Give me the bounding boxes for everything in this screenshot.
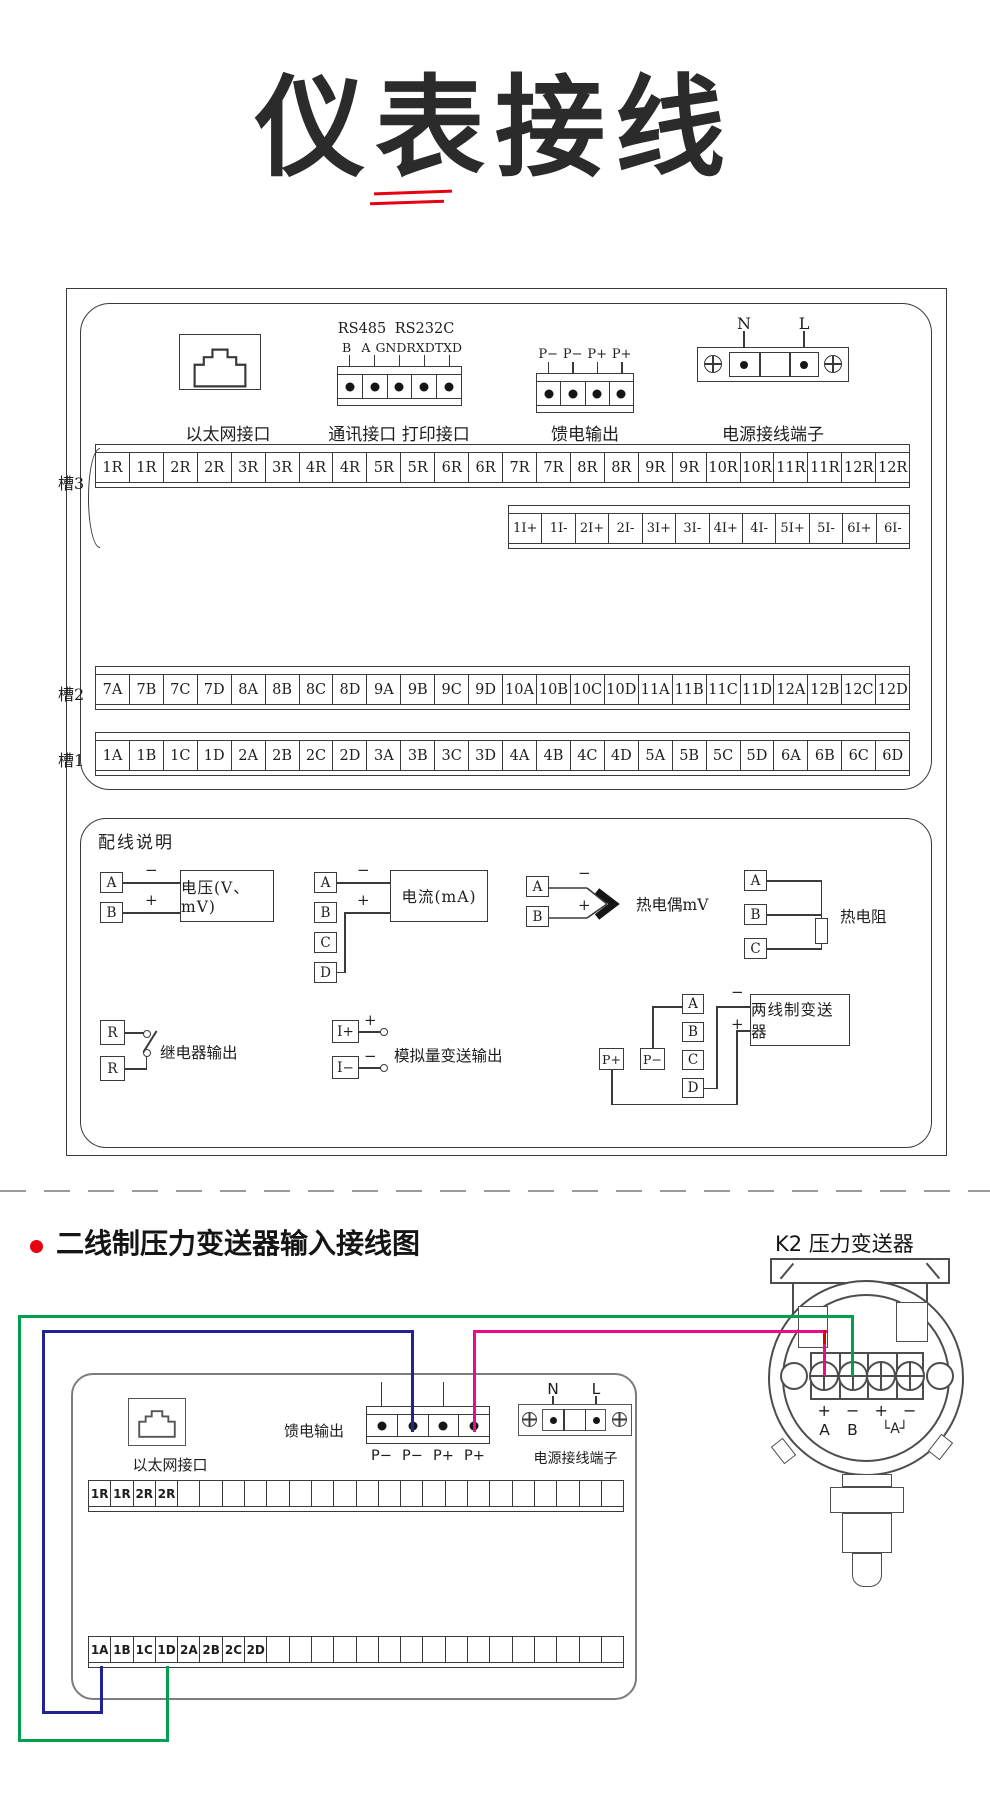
terminal-cell — [437, 375, 461, 398]
terminal-cell: 6R — [469, 453, 503, 482]
terminal-a: A — [744, 870, 767, 891]
terminal-cell: 7R — [537, 453, 571, 482]
terminal-cell: 12A — [774, 675, 808, 704]
terminal-cell: 10R — [707, 453, 741, 482]
feed-output-terminal-block — [366, 1406, 490, 1444]
terminal-cell — [446, 1637, 468, 1662]
terminal-cell: 2R — [156, 1481, 178, 1506]
terminal-block-bottom-bar — [367, 1436, 489, 1443]
terminal-cell — [468, 1481, 490, 1506]
terminal-cell — [412, 375, 437, 398]
terminal-cell: 6R — [435, 453, 469, 482]
terminal-cell — [535, 1637, 557, 1662]
bottom-relay-strip: 1R1R2R2R — [88, 1480, 624, 1507]
terminal-cell: 2R — [134, 1481, 156, 1506]
terminal-cell — [423, 1481, 445, 1506]
terminal-dot — [550, 1417, 557, 1424]
pink-wire-segment — [473, 1330, 476, 1432]
terminal-cell: 7A — [96, 675, 130, 704]
line — [767, 948, 822, 950]
terminal-cell: 2C — [300, 741, 334, 770]
terminal-cell: 1R — [130, 453, 164, 482]
terminal-cell: 1R — [111, 1481, 133, 1506]
comm-pin-label: A — [356, 339, 375, 355]
terminal-block-bottom-bar — [338, 398, 461, 405]
line — [443, 1382, 445, 1408]
terminal-cell: 7D — [198, 675, 232, 704]
terminal-cell: 5R — [401, 453, 435, 482]
terminal-cell: 2A — [178, 1637, 200, 1662]
terminal-c: C — [744, 938, 767, 959]
terminal-cell: 5R — [367, 453, 401, 482]
terminal-cell: 9B — [401, 675, 435, 704]
terminal-cell: 8A — [232, 675, 266, 704]
slot2-terminal-strip: 7A7B7C7D8A8B8C8D9A9B9C9D10A10B10C10D11A1… — [95, 674, 910, 705]
green-wire-segment — [18, 1739, 169, 1742]
terminal-cell: 1D — [156, 1637, 178, 1662]
terminal-cell — [388, 375, 413, 398]
feed-output-terminal-block — [536, 373, 634, 413]
line — [767, 880, 822, 882]
terminal-cell — [245, 1481, 267, 1506]
minus-sign: − — [731, 983, 744, 1001]
rj45-connector-icon — [138, 1410, 176, 1438]
terminal-cell — [379, 1637, 401, 1662]
terminal-cell: 1C — [164, 741, 198, 770]
terminal-cells — [338, 375, 461, 398]
feed-pin-label: P+ — [428, 1448, 459, 1464]
green-wire-segment — [166, 1666, 169, 1742]
terminal-cell — [429, 1415, 460, 1436]
ethernet-port-label: 以太网接口 — [148, 420, 308, 445]
terminal-cell: 9R — [639, 453, 673, 482]
blue-wire-segment — [42, 1330, 414, 1333]
terminal-cell: 12R — [842, 453, 876, 482]
terminal-cell: 11D — [741, 675, 775, 704]
ethernet-port-label: 以太网接口 — [110, 1454, 230, 1475]
wiring-notes-box — [80, 818, 932, 1148]
line — [337, 972, 345, 974]
terminal-cell — [468, 1637, 490, 1662]
terminal-cell — [338, 375, 363, 398]
terminal-cell: 5A — [639, 741, 673, 770]
terminal-cell: 6D — [876, 741, 909, 770]
terminal-cell: 1D — [198, 741, 232, 770]
output-dot-icon — [380, 1028, 388, 1036]
terminal-cell — [446, 1481, 468, 1506]
blue-wire-segment — [100, 1666, 103, 1714]
line — [123, 882, 180, 884]
rtd-label: 热电阻 — [840, 905, 887, 927]
line — [704, 1088, 717, 1090]
comm-pin-label: B — [337, 339, 356, 355]
terminal-cell: 4R — [333, 453, 367, 482]
comm-print-port-label: 通讯接口 打印接口 — [309, 420, 489, 445]
terminal-cell: 4R — [300, 453, 334, 482]
bottom-input-strip: 1A1B1C1D2A2B2C2D — [88, 1636, 624, 1663]
terminal-cell: 1R — [96, 453, 130, 482]
slot2-label: 槽2 — [58, 681, 84, 705]
terminal-cell: 9R — [673, 453, 707, 482]
terminal-cell: 3C — [435, 741, 469, 770]
terminal-cell: 11A — [639, 675, 673, 704]
terminal-cell: 4A — [503, 741, 537, 770]
terminal-a: A — [526, 876, 549, 897]
strip-bottom-bar — [95, 482, 910, 488]
comm-pin-label: RXD — [406, 339, 434, 355]
terminal-i-plus: I+ — [332, 1020, 359, 1043]
transmitter-b-label: B — [845, 1421, 860, 1439]
terminal-cell — [312, 1481, 334, 1506]
feed-pin-label: P− — [536, 346, 561, 362]
transmitter-hex-fitting — [830, 1487, 904, 1513]
terminal-cell — [561, 382, 585, 405]
terminal-b: B — [682, 1022, 704, 1042]
page-title: 仪表接线 — [0, 38, 990, 198]
feed-pin-label: P+ — [585, 346, 610, 362]
terminal-cell — [602, 1481, 623, 1506]
terminal-cell: 2I+ — [576, 514, 609, 543]
terminal-cell: 1R — [89, 1481, 111, 1506]
terminal-r2: R — [100, 1056, 125, 1081]
relay-output-label: 继电器输出 — [160, 1041, 238, 1063]
terminal-cell — [290, 1481, 312, 1506]
terminal-dot — [593, 1417, 600, 1424]
line — [344, 912, 390, 914]
strip-bottom-bar — [95, 770, 910, 776]
terminal-cell — [580, 1481, 602, 1506]
terminal-cell: 5I- — [810, 514, 843, 543]
terminal-cell — [610, 382, 633, 405]
terminal-cell: 4D — [605, 741, 639, 770]
terminal-cell — [312, 1637, 334, 1662]
terminal-a: A — [682, 994, 704, 1014]
terminal-r1: R — [100, 1020, 125, 1045]
terminal-cell: 2D — [333, 741, 367, 770]
terminal-cell: 8R — [571, 453, 605, 482]
terminal-cell: 3I+ — [643, 514, 676, 543]
terminal-cell — [363, 375, 388, 398]
terminal-block-top-bar — [537, 374, 633, 382]
terminal-cell: 9C — [435, 675, 469, 704]
terminal-cell: 2I- — [609, 514, 642, 543]
terminal-a: A — [100, 872, 123, 893]
terminal-p-plus: P+ — [599, 1048, 624, 1070]
terminal-screw-plus-icon — [866, 1361, 896, 1391]
minus-sign: − — [364, 1047, 377, 1065]
line — [759, 352, 761, 377]
line — [563, 1409, 565, 1431]
terminal-cell — [490, 1637, 512, 1662]
terminal-cell: 1I+ — [509, 514, 542, 543]
voltage-device-box: 电压(V、mV) — [180, 870, 274, 922]
terminal-cell — [223, 1481, 245, 1506]
terminal-cell — [537, 382, 561, 405]
terminal-cell: 1A — [89, 1637, 111, 1662]
strip-bottom-bar — [88, 1506, 624, 1512]
comm-pin-label: TXD — [435, 339, 462, 355]
terminal-dot — [800, 361, 808, 369]
feed-pin-label: P− — [366, 1448, 397, 1464]
line — [146, 1056, 148, 1069]
terminal-cell — [557, 1481, 579, 1506]
terminal-cell: 1A — [96, 741, 130, 770]
current-device-box: 电流(mA) — [390, 870, 488, 922]
line — [736, 1030, 738, 1105]
terminal-cell — [602, 1637, 623, 1662]
cap-notch — [896, 1302, 928, 1342]
slot1-label: 槽1 — [58, 747, 84, 771]
terminal-cell: 11R — [808, 453, 842, 482]
power-terminal-label: 电源接线端子 — [508, 1448, 643, 1468]
terminal-cell — [379, 1481, 401, 1506]
feed-output-label: 馈电输出 — [515, 420, 655, 445]
feed-pin-label: P+ — [610, 346, 635, 362]
terminal-screw-icon — [926, 1362, 954, 1390]
contact-dot-icon — [143, 1030, 151, 1038]
terminal-cell — [267, 1637, 289, 1662]
terminal-cell: 4B — [537, 741, 571, 770]
output-dot-icon — [380, 1064, 388, 1072]
feed-output-label: 馈电输出 — [284, 1420, 344, 1441]
strip-bottom-bar — [508, 543, 910, 549]
resistor-icon — [815, 918, 828, 944]
terminal-cell — [535, 1481, 557, 1506]
terminal-c: C — [682, 1050, 704, 1070]
section-title: 二线制压力变送器输入接线图 — [56, 1222, 420, 1262]
green-wire-segment — [18, 1315, 854, 1318]
terminal-cell: 11R — [774, 453, 808, 482]
terminal-cell — [334, 1481, 356, 1506]
line — [585, 1409, 587, 1431]
line — [359, 1067, 381, 1069]
terminal-cell: 2R — [164, 453, 198, 482]
terminal-cell: 2R — [198, 453, 232, 482]
line — [736, 1030, 750, 1032]
terminal-cell: 3D — [469, 741, 503, 770]
pink-wire-segment — [473, 1330, 827, 1333]
sign-label: − — [896, 1402, 925, 1419]
feed-pin-label: P− — [397, 1448, 428, 1464]
slot3-terminal-strip: 1R1R2R2R3R3R4R4R5R5R6R6R7R7R8R8R9R9R10R1… — [95, 452, 910, 483]
terminal-cell: 7C — [164, 675, 198, 704]
terminal-cell: 7R — [503, 453, 537, 482]
terminal-cell — [586, 382, 610, 405]
terminal-cell: 10B — [537, 675, 571, 704]
terminal-screw-icon — [780, 1362, 808, 1390]
power-terminal-label: 电源接线端子 — [693, 420, 853, 445]
terminal-block-top-bar — [338, 367, 461, 375]
terminal-cell: 8C — [300, 675, 334, 704]
terminal-cell: 8R — [605, 453, 639, 482]
transmitter-bracket-a-label: └A┘ — [866, 1421, 924, 1437]
terminal-cell — [200, 1481, 222, 1506]
blue-wire-segment — [411, 1330, 414, 1432]
plus-sign: + — [364, 1011, 377, 1029]
transmitter-sign-labels: +−+− — [810, 1402, 924, 1419]
line — [611, 1104, 737, 1106]
terminal-cell: 5D — [741, 741, 775, 770]
terminal-cell: 2D — [245, 1637, 267, 1662]
terminal-cell — [580, 1637, 602, 1662]
feed-pin-labels: P−P−P+P+ — [366, 1448, 490, 1464]
rs232c-label: RS232C — [391, 321, 458, 337]
terminal-cell: 3I- — [676, 514, 709, 543]
line — [716, 1006, 718, 1089]
sign-label: + — [867, 1402, 896, 1419]
terminal-c: C — [314, 932, 337, 953]
blue-wire-segment — [42, 1330, 45, 1714]
thermocouple-junction-icon — [549, 878, 633, 930]
comm-terminal-block — [337, 366, 462, 406]
line — [125, 1068, 147, 1070]
line — [652, 1006, 654, 1048]
slot3-current-terminal-strip: 1I+1I-2I+2I-3I+3I-4I+4I-5I+5I-6I+6I- — [508, 513, 910, 544]
terminal-cell: 9A — [367, 675, 401, 704]
screw-icon — [704, 355, 722, 373]
terminal-cell: 12D — [876, 675, 909, 704]
terminal-d: D — [682, 1078, 704, 1098]
terminal-cell: 6I- — [877, 514, 909, 543]
terminal-dot — [740, 361, 748, 369]
feed-pin-labels: P−P−P+P+ — [536, 346, 634, 362]
terminal-cell: 1I- — [542, 514, 575, 543]
transmitter-body — [842, 1513, 892, 1553]
terminal-d: D — [314, 962, 337, 983]
comm-pin-labels: BAGNDRXDTXD — [337, 339, 462, 355]
red-wire-segment — [823, 1330, 826, 1344]
terminal-block-bottom-bar — [537, 405, 633, 412]
screw-icon — [824, 355, 842, 373]
terminal-cell: 5I+ — [776, 514, 809, 543]
screw-icon — [522, 1412, 537, 1427]
line — [359, 1031, 381, 1033]
analog-output-label: 模拟量变送输出 — [394, 1044, 503, 1066]
comm-pin-label: GND — [375, 339, 406, 355]
terminal-block-top-bar — [367, 1407, 489, 1415]
title-red-underline — [370, 200, 444, 206]
section-divider — [0, 1190, 990, 1192]
terminal-cell — [178, 1481, 200, 1506]
terminal-cell: 8D — [333, 675, 367, 704]
plus-sign: + — [357, 891, 370, 909]
wiring-notes-title: 配线说明 — [98, 828, 174, 853]
terminal-cell: 6C — [842, 741, 876, 770]
terminal-cell: 4I- — [743, 514, 776, 543]
blue-wire-segment — [42, 1711, 103, 1714]
terminal-b: B — [100, 902, 123, 923]
feed-pin-label: P+ — [459, 1448, 490, 1464]
sign-label: + — [810, 1402, 839, 1419]
feed-pin-label: P− — [561, 346, 586, 362]
terminal-cell — [490, 1481, 512, 1506]
terminal-cell — [401, 1481, 423, 1506]
terminal-cell — [557, 1637, 579, 1662]
terminal-cell: 12C — [842, 675, 876, 704]
terminal-b: B — [526, 906, 549, 927]
terminal-cell: 5C — [707, 741, 741, 770]
transmitter-a-label: A — [817, 1421, 832, 1439]
minus-sign: − — [357, 861, 370, 879]
terminal-cell — [267, 1481, 289, 1506]
rs485-label: RS485 — [332, 321, 392, 337]
terminal-cell: 7B — [130, 675, 164, 704]
line — [611, 1070, 613, 1105]
rj45-connector-icon — [193, 348, 247, 388]
terminal-cell — [367, 1415, 398, 1436]
line — [123, 912, 180, 914]
slot1-terminal-strip: 1A1B1C1D2A2B2C2D3A3B3C3D4A4B4C4D5A5B5C5D… — [95, 740, 910, 771]
terminal-cell: 3R — [266, 453, 300, 482]
terminal-cell: 4I+ — [710, 514, 743, 543]
terminal-cell — [513, 1637, 535, 1662]
terminal-b: B — [314, 902, 337, 923]
terminal-cell — [513, 1481, 535, 1506]
terminal-cell: 10D — [605, 675, 639, 704]
terminal-cell: 10R — [741, 453, 775, 482]
terminal-cell: 6I+ — [843, 514, 876, 543]
plus-sign: + — [145, 891, 158, 909]
terminal-cell — [290, 1637, 312, 1662]
terminal-screw-minus-icon — [895, 1361, 925, 1391]
terminal-cell — [423, 1637, 445, 1662]
pink-wire-segment — [823, 1344, 826, 1376]
terminal-cell: 8B — [266, 675, 300, 704]
line — [344, 912, 346, 973]
minus-sign: − — [145, 861, 158, 879]
terminal-cell: 10A — [503, 675, 537, 704]
slot3-label: 槽3 — [58, 470, 84, 494]
bullet-icon — [30, 1240, 43, 1253]
terminal-cell: 12R — [876, 453, 909, 482]
terminal-a: A — [314, 872, 337, 893]
terminal-cell: 2B — [266, 741, 300, 770]
terminal-cell: 1B — [111, 1637, 133, 1662]
transmitter-flange — [842, 1474, 892, 1487]
terminal-cell — [357, 1481, 379, 1506]
line — [381, 1382, 383, 1408]
terminal-b: B — [744, 904, 767, 925]
terminal-cell: 6A — [774, 741, 808, 770]
sign-label: − — [839, 1402, 868, 1419]
terminal-cell: 9D — [469, 675, 503, 704]
line — [716, 1006, 750, 1008]
terminal-cell: 1C — [134, 1637, 156, 1662]
green-wire-segment — [18, 1315, 21, 1742]
terminal-cell — [401, 1637, 423, 1662]
terminal-cell: 3A — [367, 741, 401, 770]
terminal-cell — [334, 1637, 356, 1662]
terminal-cell: 4C — [571, 741, 605, 770]
screw-icon — [612, 1412, 627, 1427]
terminal-cell: 2C — [223, 1637, 245, 1662]
line — [652, 1006, 682, 1008]
line — [337, 882, 390, 884]
terminal-cell: 11C — [707, 675, 741, 704]
two-wire-transmitter-box: 两线制变送器 — [750, 994, 850, 1046]
terminal-cell — [357, 1637, 379, 1662]
terminal-cell: 5B — [673, 741, 707, 770]
strip-bottom-bar — [95, 704, 910, 710]
instrument-wiring-page: 仪表接线 以太网接口 RS485 RS232C BAGNDRXDTXD 通讯接口… — [0, 0, 990, 1798]
line — [789, 352, 791, 377]
terminal-cell: 11B — [673, 675, 707, 704]
transmitter-process-connection — [852, 1553, 882, 1587]
terminal-cell: 1B — [130, 741, 164, 770]
terminal-cell: 2A — [232, 741, 266, 770]
terminal-cell: 3R — [232, 453, 266, 482]
terminal-cell: 6B — [808, 741, 842, 770]
